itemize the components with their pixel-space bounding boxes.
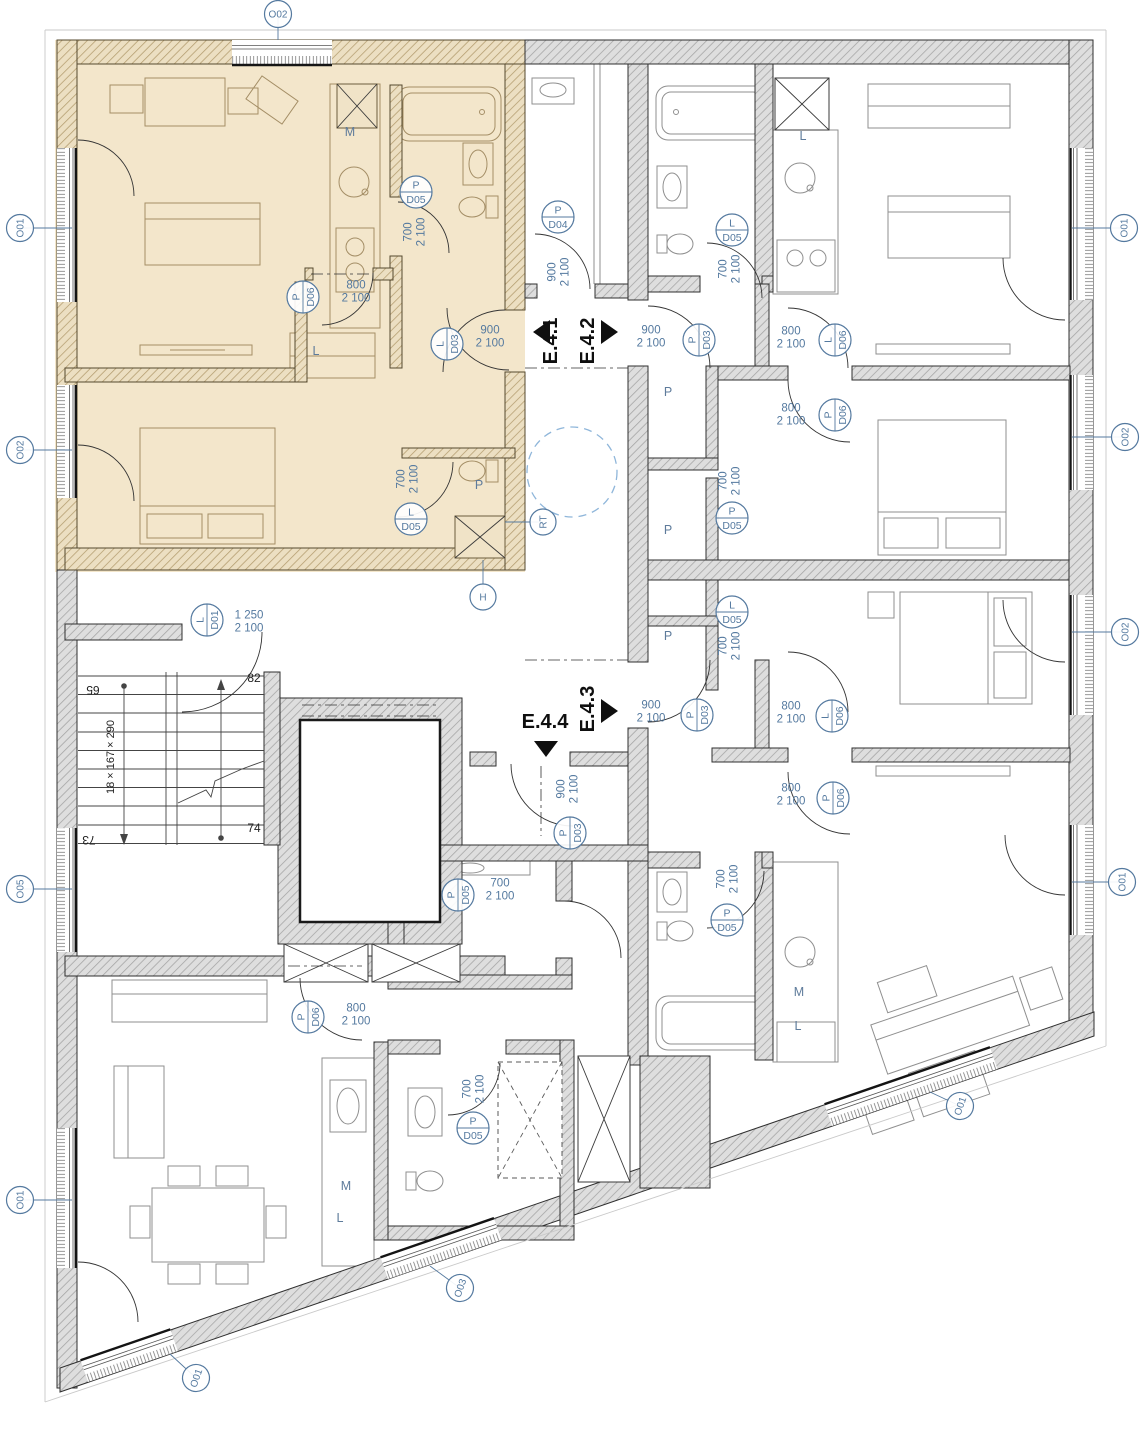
- window: [1069, 148, 1093, 300]
- window: [232, 40, 332, 65]
- svg-text:2 100: 2 100: [476, 338, 505, 350]
- svg-text:700: 700: [716, 869, 728, 888]
- svg-text:D03: D03: [572, 823, 584, 842]
- svg-text:H: H: [479, 593, 486, 604]
- door-tag-D05: PD05: [400, 176, 432, 208]
- svg-text:2 100: 2 100: [637, 338, 666, 350]
- svg-text:2 100: 2 100: [235, 623, 264, 635]
- dimension-label: 7002 100: [486, 878, 515, 903]
- svg-text:P: P: [554, 205, 561, 217]
- svg-text:800: 800: [781, 783, 800, 795]
- door-tag-D05: PD05: [711, 904, 743, 936]
- entrance-E.4.4: E.4.4: [522, 711, 570, 757]
- door-tag-D06: PD06: [292, 1001, 324, 1033]
- window-tag-O02: O02: [1112, 619, 1139, 646]
- entrance-arrow-icon: [601, 320, 618, 344]
- svg-text:O01: O01: [16, 1190, 27, 1209]
- svg-text:800: 800: [781, 701, 800, 713]
- window-tag-O01: O01: [1111, 215, 1138, 242]
- svg-text:P: P: [728, 506, 735, 518]
- svg-text:D03: D03: [701, 330, 713, 349]
- svg-text:RT: RT: [539, 515, 550, 528]
- dimension-label: 8002 100: [777, 701, 806, 726]
- door-tag-D05: PD05: [442, 879, 474, 911]
- door-tag-D03: LD03: [431, 328, 463, 360]
- svg-text:2 100: 2 100: [731, 467, 743, 496]
- svg-text:L: L: [729, 600, 735, 612]
- svg-text:2 100: 2 100: [777, 796, 806, 808]
- svg-text:2 100: 2 100: [731, 632, 743, 661]
- svg-text:L: L: [435, 341, 447, 347]
- dimension-label: 9002 100: [556, 775, 581, 804]
- svg-text:P: P: [446, 891, 458, 898]
- svg-text:L: L: [195, 617, 207, 623]
- svg-text:D01: D01: [209, 610, 221, 629]
- floor-plan-page: { "drawing": { "type": "apartment floor …: [0, 0, 1143, 1431]
- room-letter-M: M: [341, 1179, 351, 1193]
- window: [57, 1128, 77, 1268]
- svg-text:2 100: 2 100: [777, 714, 806, 726]
- dimension-label: 8002 100: [777, 326, 806, 351]
- dimension-label: 7002 100: [718, 467, 743, 496]
- svg-text:900: 900: [641, 700, 660, 712]
- door-tag-D05: LD05: [716, 214, 748, 246]
- window-tag-O02: O02: [265, 1, 292, 28]
- dimension-label: 9002 100: [547, 258, 572, 287]
- door-tag-D05: PD05: [716, 502, 748, 534]
- svg-text:D03: D03: [449, 334, 461, 353]
- door-tag-D06: PD06: [817, 782, 849, 814]
- stair-texts: 18 × 167 × 290 65 82 73 74: [82, 671, 261, 847]
- svg-text:L: L: [823, 337, 835, 343]
- svg-text:800: 800: [346, 1003, 365, 1015]
- svg-text:2 100: 2 100: [731, 255, 743, 284]
- window: [57, 828, 77, 952]
- room-letter-P: P: [664, 523, 672, 537]
- ref-tag-H: H: [470, 584, 496, 610]
- entrance-arrow-icon: [534, 741, 558, 757]
- dimension-label: 7002 100: [718, 632, 743, 661]
- svg-text:P: P: [291, 293, 303, 300]
- dimension-label: 7002 100: [716, 865, 741, 894]
- svg-text:D05: D05: [722, 614, 741, 626]
- window-tag-O01: O01: [7, 1187, 34, 1214]
- svg-text:700: 700: [462, 1079, 474, 1098]
- shaft-box: [372, 944, 460, 982]
- svg-text:P: P: [296, 1013, 308, 1020]
- door-tag-D03: PD03: [681, 699, 713, 731]
- svg-text:P: P: [823, 411, 835, 418]
- svg-text:D06: D06: [837, 405, 849, 424]
- door-tag-D06: PD06: [819, 399, 851, 431]
- dimension-label: 8002 100: [777, 783, 806, 808]
- svg-text:P: P: [821, 794, 833, 801]
- svg-text:O01: O01: [1120, 218, 1131, 237]
- room-letter-M: M: [345, 125, 355, 139]
- dimension-label: 7002 100: [718, 255, 743, 284]
- entrance-label: E.4.3: [577, 686, 599, 733]
- shaft-box: [337, 84, 377, 128]
- entrance-E.4.2: E.4.2: [577, 318, 618, 365]
- stair-num-br: 74: [247, 821, 261, 835]
- entrance-label: E.4.2: [577, 318, 599, 365]
- svg-text:D05: D05: [406, 194, 425, 206]
- room-letter-P: P: [664, 385, 672, 399]
- window-tag-O02: O02: [1112, 424, 1139, 451]
- entrance-arrow-icon: [601, 699, 618, 723]
- window-tag-O02: O02: [7, 437, 34, 464]
- room-letter-P: P: [664, 629, 672, 643]
- svg-text:700: 700: [718, 259, 730, 278]
- dimension-label: 9002 100: [637, 325, 666, 350]
- svg-text:D05: D05: [460, 885, 472, 904]
- svg-text:D06: D06: [310, 1007, 322, 1026]
- svg-text:D05: D05: [722, 520, 741, 532]
- window-tag-O05: O05: [7, 876, 34, 903]
- svg-text:1 250: 1 250: [235, 610, 264, 622]
- svg-text:D04: D04: [548, 219, 567, 231]
- svg-text:2 100: 2 100: [486, 891, 515, 903]
- svg-text:2 100: 2 100: [777, 339, 806, 351]
- svg-text:2 100: 2 100: [409, 465, 421, 494]
- svg-text:2 100: 2 100: [637, 713, 666, 725]
- stair-num-bl: 73: [82, 833, 96, 847]
- svg-text:D05: D05: [717, 922, 736, 934]
- door-tag-D05: PD05: [457, 1112, 489, 1144]
- svg-text:2 100: 2 100: [342, 1016, 371, 1028]
- svg-text:P: P: [687, 336, 699, 343]
- svg-text:O01: O01: [1118, 872, 1129, 891]
- room-letter-M: M: [794, 985, 804, 999]
- svg-text:P: P: [723, 908, 730, 920]
- floor-plan-svg: 18 × 167 × 290 65 82 73 74 PD06LD03PD03P…: [0, 0, 1143, 1431]
- entrance-E.4.1: E.4.1: [533, 318, 562, 365]
- svg-text:900: 900: [556, 779, 568, 798]
- room-letter-L: L: [800, 129, 807, 143]
- svg-text:P: P: [558, 829, 570, 836]
- room-letter-L: L: [313, 344, 320, 358]
- door-tag-D06: LD06: [816, 700, 848, 732]
- svg-text:O01: O01: [16, 218, 27, 237]
- entrance-label: E.4.4: [522, 711, 570, 733]
- svg-text:O02: O02: [269, 10, 288, 21]
- svg-text:P: P: [469, 1116, 476, 1128]
- svg-text:2 100: 2 100: [569, 775, 581, 804]
- ref-tag-RT: RT: [530, 509, 556, 535]
- room-letter-L: L: [795, 1019, 802, 1033]
- door-tag-D03: PD03: [554, 817, 586, 849]
- window-tag-O03: O03: [443, 1271, 477, 1305]
- svg-text:800: 800: [346, 280, 365, 292]
- svg-text:2 100: 2 100: [475, 1075, 487, 1104]
- entrance-E.4.3: E.4.3: [577, 686, 618, 733]
- svg-text:L: L: [729, 218, 735, 230]
- shower: [498, 1062, 562, 1178]
- dimension-label: 7002 100: [462, 1075, 487, 1104]
- window: [57, 385, 77, 498]
- svg-text:O02: O02: [1121, 622, 1132, 641]
- svg-text:2 100: 2 100: [342, 293, 371, 305]
- dashed-reference-circle: [527, 427, 617, 517]
- shaft-box: [284, 944, 368, 982]
- window: [1069, 375, 1093, 490]
- stair-num-tl: 65: [86, 683, 100, 697]
- svg-text:P: P: [685, 711, 697, 718]
- svg-text:2 100: 2 100: [777, 416, 806, 428]
- shaft-box: [455, 516, 505, 558]
- dimension-label: 9002 100: [637, 700, 666, 725]
- svg-text:D06: D06: [837, 330, 849, 349]
- dimension-label: 8002 100: [342, 1003, 371, 1028]
- svg-text:900: 900: [480, 325, 499, 337]
- svg-text:D06: D06: [835, 788, 847, 807]
- stair-num-tr: 82: [247, 671, 261, 685]
- svg-text:700: 700: [396, 469, 408, 488]
- door-tag-D06: PD06: [287, 281, 319, 313]
- svg-text:2 100: 2 100: [729, 865, 741, 894]
- svg-text:D06: D06: [305, 287, 317, 306]
- svg-text:D06: D06: [834, 706, 846, 725]
- entrance-label: E.4.1: [540, 318, 562, 365]
- door-tag-D04: PD04: [542, 201, 574, 233]
- svg-text:L: L: [408, 507, 414, 519]
- svg-text:700: 700: [718, 471, 730, 490]
- svg-text:D05: D05: [463, 1130, 482, 1142]
- svg-text:700: 700: [403, 222, 415, 241]
- shaft-box: [578, 1056, 630, 1182]
- door-tag-D05: LD05: [395, 503, 427, 535]
- door-tag-D01: LD01: [191, 604, 223, 636]
- svg-text:2 100: 2 100: [416, 218, 428, 247]
- svg-text:O05: O05: [16, 879, 27, 898]
- svg-text:L: L: [820, 713, 832, 719]
- svg-text:D03: D03: [699, 705, 711, 724]
- svg-text:D05: D05: [722, 232, 741, 244]
- svg-text:900: 900: [547, 262, 559, 281]
- svg-text:800: 800: [781, 403, 800, 415]
- window-tag-O01: O01: [1109, 869, 1136, 896]
- window: [1069, 595, 1093, 715]
- window-tag-O01: O01: [943, 1089, 977, 1123]
- elevator-shaft: [300, 720, 440, 922]
- door-tag-D05: LD05: [716, 596, 748, 628]
- dimension-label: 1 2502 100: [235, 610, 264, 635]
- svg-text:700: 700: [490, 878, 509, 890]
- dimension-label: 8002 100: [777, 403, 806, 428]
- door-tag-D06: LD06: [819, 324, 851, 356]
- door-tag-D03: PD03: [683, 324, 715, 356]
- window: [57, 148, 77, 302]
- room-letter-L: L: [337, 1211, 344, 1225]
- svg-text:P: P: [412, 180, 419, 192]
- svg-text:900: 900: [641, 325, 660, 337]
- window: [1069, 825, 1093, 935]
- svg-text:D05: D05: [401, 521, 420, 533]
- svg-text:O02: O02: [16, 440, 27, 459]
- svg-text:800: 800: [781, 326, 800, 338]
- window-tag-O01: O01: [179, 1361, 213, 1395]
- shaft-box: [775, 78, 829, 130]
- stair-formula: 18 × 167 × 290: [105, 720, 117, 794]
- svg-text:O02: O02: [1121, 427, 1132, 446]
- svg-text:2 100: 2 100: [560, 258, 572, 287]
- room-letter-P: P: [475, 478, 483, 492]
- window-tag-O01: O01: [7, 215, 34, 242]
- svg-text:700: 700: [718, 636, 730, 655]
